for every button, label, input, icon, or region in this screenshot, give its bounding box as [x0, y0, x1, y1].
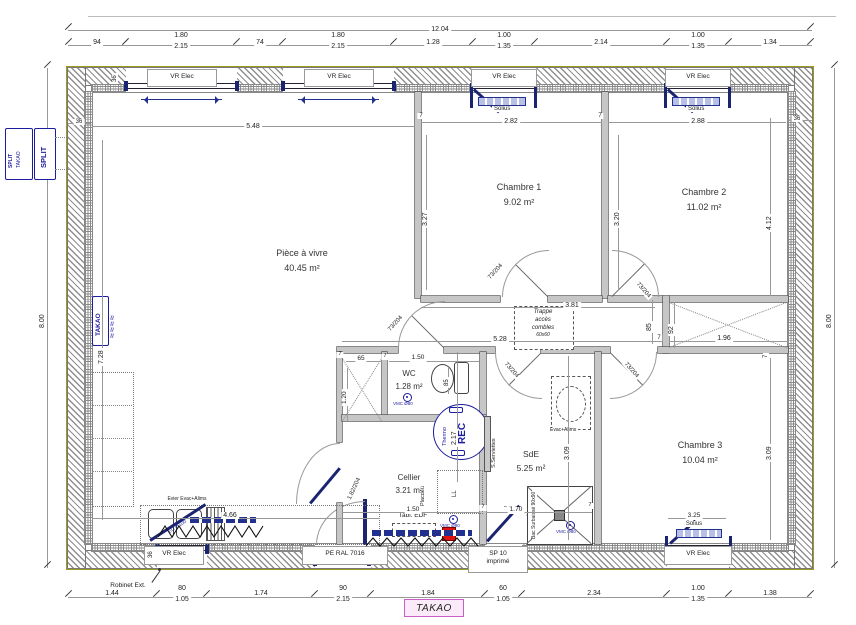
door-arc-chambre2 [612, 250, 659, 297]
window-label: VR Elec [686, 73, 709, 80]
dim: 1.20 [342, 389, 349, 406]
towel-dryer [484, 416, 491, 472]
dim-line [834, 68, 835, 568]
dim: 1.44 [103, 590, 121, 597]
dim-line [457, 352, 458, 482]
shower-tray-label: Bac Surbaissé 90x90 [532, 490, 537, 541]
exterior-wall-left [68, 68, 85, 568]
dim: 1.38 [761, 590, 779, 597]
dim-line [486, 512, 592, 513]
dim-stacked: 601.05 [494, 584, 512, 606]
solius-label: Solius [684, 521, 704, 527]
exterior-tap-label: Robinet Ext. [108, 583, 147, 590]
dim-tick [367, 590, 374, 597]
partition-wall [595, 352, 601, 544]
split-unit-label: SPLIT [40, 145, 48, 170]
washer-drum [556, 386, 586, 422]
sliding-window-arrow [298, 99, 379, 100]
dim-tick [122, 38, 129, 45]
plan-title-box: TAKAO [404, 599, 464, 617]
attic-hatch-label: Trappe [532, 309, 555, 315]
kitchen-divider [92, 405, 132, 406]
dim: 1.84 [419, 590, 437, 597]
dim: 1.50 [410, 355, 427, 362]
toilet-bowl [431, 364, 454, 393]
dim-tick [807, 590, 814, 597]
dim-total-width: 12.04 [429, 26, 451, 33]
dim: 1.80 [174, 31, 188, 42]
solius-radiator [676, 529, 722, 538]
window-jamb [124, 81, 128, 91]
room-name: Cellier [395, 472, 422, 485]
dim: 94 [91, 39, 103, 46]
dim-tick [390, 38, 397, 45]
room-label-cellier: Cellier 3.21 m² [395, 472, 422, 498]
dim: 65 [355, 356, 366, 363]
dim-sub: 2.15 [174, 42, 188, 53]
door-size-label: 1.82/204 [346, 475, 363, 502]
solius-radiator [672, 97, 720, 106]
solius-label: Solius [492, 106, 512, 112]
dim-tick [65, 38, 72, 45]
room-label-chambre3: Chambre 3 10.04 m² [678, 438, 723, 469]
dim: 1.34 [761, 39, 779, 46]
room-area: 40.45 m² [276, 261, 328, 276]
dim-right-height: 8.00 [826, 312, 833, 330]
dim: 7 [336, 352, 343, 358]
dim: 1.00 [691, 584, 705, 595]
dim: 3.09 [766, 444, 773, 462]
dim: 7 [417, 113, 424, 119]
edf-panel-label: Tabl. EDF [397, 513, 430, 520]
dim-tick [481, 590, 488, 597]
room-name: Chambre 3 [678, 438, 723, 453]
dim: 7 [586, 503, 593, 509]
partition-wall [421, 296, 500, 302]
dim: 7 [655, 335, 662, 341]
dim: 36 [74, 119, 85, 125]
entrance-door-tab: PE RAL 7016 [302, 546, 388, 565]
dim: 1.96 [715, 335, 733, 342]
washer-ll-box [437, 470, 483, 514]
solius-label: Solius [686, 106, 706, 112]
dim: 36 [112, 73, 118, 84]
window-jamb [281, 81, 285, 91]
dim: 36 [148, 549, 154, 560]
dim-tick [531, 38, 538, 45]
dim-line [421, 307, 655, 308]
leader-line [55, 169, 69, 170]
dim-tick [65, 23, 72, 30]
dim: Placdeu [421, 484, 427, 508]
dim: 1.00 [691, 31, 705, 42]
dim: 1.70 [508, 507, 525, 514]
dim: 2.34 [585, 590, 603, 597]
sink-label: Evier Evac+Alims [165, 497, 208, 502]
dim: 36 [792, 116, 803, 122]
window-label-tab: VR Elec [665, 69, 731, 87]
attic-hatch-label: 60x60 [534, 333, 552, 338]
dim-stacked: 1.001.35 [495, 31, 513, 53]
window-label: VR Elec [327, 73, 350, 80]
dim-tick [203, 590, 210, 597]
dim-tick [725, 38, 732, 45]
sliding-window-arrow [141, 99, 222, 100]
floor-plan: VR Elec VR Elec VR Elec VR Elec Solius S… [0, 0, 856, 625]
dim-tick [469, 38, 476, 45]
dim-sub: 2.15 [331, 42, 345, 53]
dim-line [102, 140, 103, 520]
room-name: SdE [517, 448, 546, 462]
window-label-tab: VR Elec [304, 69, 374, 87]
dim: 92 [668, 324, 675, 336]
water-heater-port [449, 407, 463, 413]
room-area: 11.02 m² [682, 200, 727, 215]
dim: 60 [496, 584, 510, 595]
washer-ll-label: LL [452, 488, 458, 499]
dim-sub: 1.05 [175, 595, 189, 606]
wall-edge [812, 66, 814, 570]
dim: 74 [254, 39, 266, 46]
plan-title: TAKAO [416, 603, 452, 614]
dim-stacked: 1.802.15 [329, 31, 347, 53]
dim-sub: 1.35 [691, 595, 705, 606]
dim-tick [44, 61, 51, 68]
washer-evac-label: Evac+Alims [548, 428, 578, 433]
dim-tick [153, 590, 160, 597]
kitchen-divider [92, 471, 132, 472]
window-label-tab: VR Elec [147, 69, 217, 87]
vmc-outlet-label: VMC Ø80 [556, 530, 576, 535]
electric-radiator [366, 536, 482, 548]
dim: 2.82 [502, 118, 520, 125]
dim-sub: 2.15 [336, 595, 350, 606]
dim: 7 [381, 354, 388, 360]
service-door-tab: SP 10 imprimé [468, 546, 528, 573]
dim-tick [725, 590, 732, 597]
dim-line [389, 361, 479, 362]
dim-tick [663, 590, 670, 597]
dim: 4.12 [766, 214, 773, 232]
room-name: WC [395, 368, 422, 381]
door-arc-chambre1 [502, 250, 549, 297]
exterior-tap-leader [151, 571, 160, 583]
dim: 1.80 [331, 31, 345, 42]
dim-tick [663, 38, 670, 45]
dim: 1.74 [252, 590, 270, 597]
dim-stacked: 1.001.35 [689, 31, 707, 53]
water-heater-port [451, 450, 465, 456]
dim-tick [233, 38, 240, 45]
exterior-wall-right [795, 68, 812, 568]
dim-tick [831, 61, 838, 68]
dim-sub: 1.35 [497, 42, 511, 53]
dim-stacked: 1.802.15 [172, 31, 190, 53]
dim-stacked: 902.15 [334, 584, 352, 606]
room-area: 1.28 m² [395, 381, 422, 394]
dim: 3.25 [686, 513, 703, 520]
water-heater-thermo-label: Thermo [443, 425, 449, 448]
dim: 7 [479, 505, 486, 511]
dim-tick [65, 590, 72, 597]
kitchen-counter [92, 372, 134, 507]
partition-wall [444, 347, 495, 353]
split-unit-label: TAKAO [17, 149, 22, 170]
radiator-element [372, 530, 472, 536]
window-label-tab: VR Elec [471, 69, 537, 87]
electric-radiator [158, 524, 266, 539]
dim: 1.00 [497, 31, 511, 42]
door-size-label: 73/204 [486, 261, 505, 282]
room-label-chambre2: Chambre 2 11.02 m² [682, 185, 727, 216]
dim: 2.88 [689, 118, 707, 125]
dim: 3.81 [563, 302, 581, 309]
dim: 7 [763, 353, 769, 360]
room-name: Pièce à vivre [276, 246, 328, 261]
partition-wall [337, 347, 398, 353]
service-door-label-1: SP 10 [469, 550, 527, 558]
window-label: VR Elec [686, 550, 709, 557]
dim: 7.28 [98, 348, 105, 366]
attic-hatch-label: combles [530, 325, 556, 331]
solius-radiator [478, 97, 526, 106]
water-heater-rec-label: REC [458, 421, 468, 446]
room-area: 9.02 m² [497, 195, 542, 210]
wall-edge [66, 568, 814, 570]
dim: 7 [596, 113, 603, 119]
room-name: Chambre 2 [682, 185, 727, 200]
dim: 5.48 [244, 123, 262, 130]
dim-sub: 1.05 [496, 595, 510, 606]
service-door-label-2: imprimé [469, 558, 527, 566]
dim-sub: 1.35 [691, 42, 705, 53]
dim: 4.66 [221, 512, 239, 519]
dim-line [770, 118, 771, 296]
dim: 3.20 [614, 210, 621, 228]
dim-tick [311, 590, 318, 597]
partition-wall [382, 352, 387, 418]
towel-dryer-label: S.Serviettes [492, 436, 498, 470]
exterior-tap-dot [158, 568, 161, 571]
window-jamb [205, 544, 209, 554]
room-area: 10.04 m² [678, 453, 723, 468]
dim-tick [518, 590, 525, 597]
room-label-chambre1: Chambre 1 9.02 m² [497, 180, 542, 211]
room-label-piece-a-vivre: Pièce à vivre 40.45 m² [276, 246, 328, 277]
room-area: 5.25 m² [517, 462, 546, 476]
insulation [788, 92, 795, 544]
room-area: 3.21 m² [395, 485, 422, 498]
dim: 90 [336, 584, 350, 595]
dim-tick [807, 23, 814, 30]
room-label-sde: SdE 5.25 m² [517, 448, 546, 475]
vmc-outlet-label: VMC Ø80 [393, 402, 413, 407]
entrance-door-label: PE RAL 7016 [325, 550, 364, 557]
window-label: VR Elec [162, 550, 185, 557]
insulation [85, 92, 92, 544]
dim-tick [279, 38, 286, 45]
window-label-tab: VR Elec [664, 546, 732, 565]
sheet-frame-line [88, 16, 836, 17]
door-arc-cellier [296, 443, 340, 504]
attic-hatch-label: accès [533, 317, 553, 323]
room-label-wc: WC 1.28 m² [395, 368, 422, 394]
window-label: VR Elec [492, 73, 515, 80]
dim: 1.28 [424, 39, 442, 46]
dim: 80 [175, 584, 189, 595]
dim-tick [807, 38, 814, 45]
dim: 85 [646, 321, 653, 333]
dim: 3.09 [564, 444, 571, 462]
kitchen-divider [92, 438, 132, 439]
window-jamb [392, 81, 396, 91]
dim-left-height: 8.00 [39, 312, 46, 330]
split-unit-label: SPLIT [9, 152, 14, 170]
room-name: Chambre 1 [497, 180, 542, 195]
closet-line [669, 302, 788, 303]
dim: 2.14 [592, 39, 610, 46]
dim: 3.27 [422, 210, 429, 228]
dim: 5.28 [491, 336, 509, 343]
dim: 2.17 [451, 429, 458, 447]
radiator-waves-icon: ≈≈≈≈ [108, 312, 117, 340]
leader-line [55, 137, 69, 138]
dim-stacked: 1.001.35 [689, 584, 707, 606]
window-label: VR Elec [170, 73, 193, 80]
window-jamb [235, 81, 239, 91]
dim-stacked: 801.05 [173, 584, 191, 606]
dim: 85 [444, 377, 450, 388]
dim: 1.50 [405, 507, 422, 514]
